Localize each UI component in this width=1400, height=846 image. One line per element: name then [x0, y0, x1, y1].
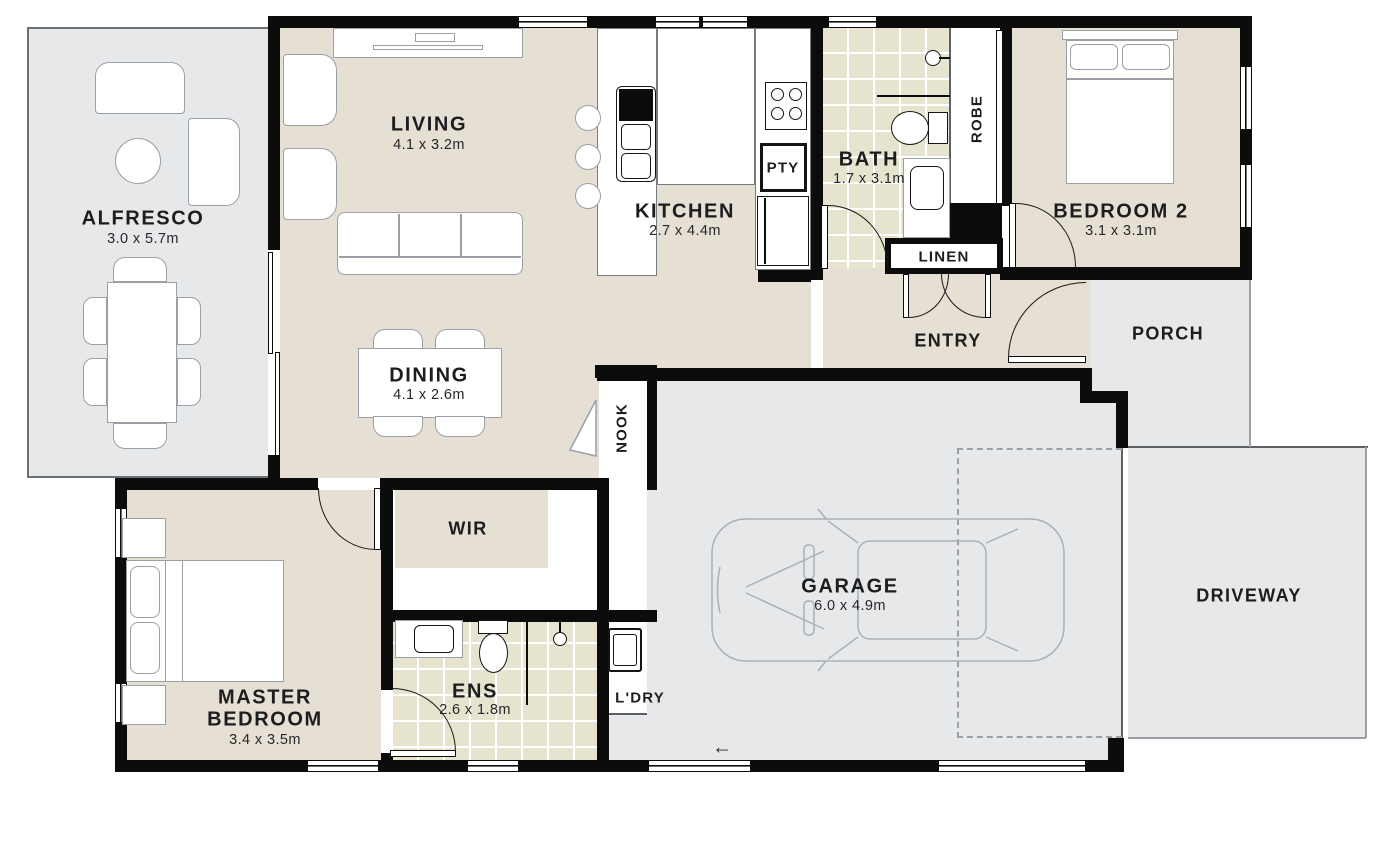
wall [747, 16, 830, 28]
door-leaf-linen [903, 274, 909, 318]
wall [876, 16, 1252, 28]
door-leaf-entry [1008, 356, 1086, 363]
door-leaf-linen [985, 274, 991, 318]
window-bedroom2 [1240, 164, 1252, 228]
dims-master: 3.4 x 3.5m [229, 732, 301, 748]
wall [1240, 16, 1252, 68]
sofa-cushion-line [398, 214, 400, 256]
pillow [130, 622, 160, 674]
label-ens: ENS [452, 681, 498, 704]
outdoor-dining-chair [83, 297, 107, 345]
window-master-bottom [307, 760, 379, 772]
nook-board [566, 398, 600, 460]
porch-edge-line [1249, 280, 1251, 447]
outdoor-dining-chair [177, 358, 201, 406]
door-leaf-master [374, 488, 381, 550]
laundry-tub-basin [613, 634, 637, 666]
vanity-sink [414, 625, 454, 653]
sink-basin [621, 153, 651, 179]
driveway-right-line [1365, 447, 1367, 738]
dims-kitchen: 2.7 x 4.4m [649, 223, 721, 239]
toilet-bowl [891, 111, 929, 145]
dining-chair [373, 329, 423, 350]
wall [268, 16, 520, 28]
wall [750, 760, 940, 772]
label-linen: LINEN [919, 249, 970, 266]
sliding-door-panel [275, 352, 280, 456]
window-living-top [518, 16, 588, 28]
wall [758, 270, 811, 282]
shower-screen [877, 95, 950, 97]
nightstand [122, 518, 166, 558]
dining-chair [435, 416, 485, 437]
garage-slab-patch [609, 715, 647, 760]
stool [575, 183, 601, 209]
wall [268, 455, 280, 480]
wall [115, 478, 318, 490]
pillow [1122, 44, 1170, 70]
wall [115, 478, 127, 510]
wall [1240, 130, 1252, 164]
driveway-bottom-line [1128, 737, 1366, 739]
bed-sheet-fold [165, 560, 183, 682]
window-ens-bottom [467, 760, 519, 772]
wall [647, 378, 657, 490]
kitchen-bench [657, 28, 755, 185]
dims-garage: 6.0 x 4.9m [814, 598, 886, 614]
entry-arrow: ← [712, 737, 732, 760]
sliding-door-robe [996, 30, 1003, 204]
label-alfresco: ALFRESCO [82, 208, 205, 231]
burner [771, 107, 784, 120]
label-master-line1: MASTER [218, 687, 312, 710]
toilet-tank [478, 620, 508, 634]
tv [415, 33, 455, 42]
outdoor-dining-chair [177, 297, 201, 345]
label-porch: PORCH [1132, 324, 1204, 345]
dining-chair [435, 329, 485, 350]
outdoor-dining-chair [83, 358, 107, 406]
label-nook: NOOK [614, 403, 631, 453]
sofa [337, 212, 523, 275]
outdoor-round-table [115, 138, 161, 184]
wall [950, 203, 1002, 238]
shower-arm [939, 57, 950, 59]
door-leaf-ens [390, 750, 456, 757]
wall [595, 365, 657, 378]
vanity-sink [910, 166, 944, 210]
dims-living: 4.1 x 3.2m [393, 137, 465, 153]
label-entry: ENTRY [914, 331, 981, 352]
label-kitchen: KITCHEN [635, 201, 735, 224]
wall [1108, 738, 1124, 764]
fridge-door-line [764, 198, 766, 264]
label-master-line2: BEDROOM [207, 709, 323, 732]
label-pantry: PTY [767, 160, 800, 177]
hall-floor [600, 278, 811, 370]
burner [789, 88, 802, 101]
wall [268, 28, 280, 252]
tv-soundbar [373, 45, 483, 50]
driveway-top-line [1128, 446, 1368, 448]
wall [597, 368, 1092, 381]
floor-plan: ← ALFRESCO 3.0 x 5.7m LIVING 4.1 x 3.2m … [0, 0, 1400, 846]
toilet-tank [928, 112, 948, 144]
label-living: LIVING [391, 114, 467, 137]
window-bath-top [828, 16, 878, 28]
sofa-back-line [339, 256, 521, 258]
window-mullion [699, 16, 703, 28]
burner [789, 107, 802, 120]
hall-to-wir [609, 490, 647, 612]
pillow [130, 566, 160, 618]
label-wir: WIR [448, 519, 487, 540]
wall [115, 760, 309, 772]
armchair [283, 54, 337, 126]
wall [381, 618, 393, 690]
outdoor-sofa [95, 62, 185, 114]
dims-dining: 4.1 x 2.6m [393, 387, 465, 403]
dims-alfresco: 3.0 x 5.7m [107, 231, 179, 247]
window-garage-bottom [648, 760, 752, 772]
dining-chair [373, 416, 423, 437]
label-dining: DINING [389, 365, 469, 388]
bed-sheet-line [1067, 78, 1173, 80]
armchair [283, 148, 337, 220]
dims-bath: 1.7 x 3.1m [833, 171, 905, 187]
wall [588, 16, 657, 28]
sofa-cushion-line [460, 214, 462, 256]
wall [381, 490, 393, 612]
wall [597, 478, 609, 620]
label-garage: GARAGE [801, 576, 898, 599]
wir-closet-side [548, 490, 597, 568]
garage-door [938, 760, 1087, 772]
outdoor-dining-chair [113, 257, 167, 282]
stool [575, 105, 601, 131]
bed-headboard [1062, 30, 1178, 40]
shower-head-icon [553, 632, 567, 646]
sink-drainer [619, 89, 653, 121]
outdoor-chair [188, 118, 240, 206]
sink-basin [621, 124, 651, 150]
wir-closet-strip [395, 568, 597, 610]
wall [519, 760, 650, 772]
outdoor-dining-table [107, 282, 177, 423]
wall [1090, 391, 1128, 403]
door-leaf-bath [821, 205, 828, 269]
burner [771, 88, 784, 101]
label-bath: BATH [839, 149, 899, 172]
window-bedroom2 [1240, 66, 1252, 130]
sliding-door-panel [268, 252, 273, 354]
label-laundry: L'DRY [615, 690, 665, 707]
pillow [1070, 44, 1118, 70]
stool [575, 144, 601, 170]
outdoor-dining-chair [113, 423, 167, 449]
toilet-bowl [479, 633, 508, 673]
nightstand [122, 685, 166, 725]
wall [1116, 403, 1128, 448]
shower-arm [559, 620, 561, 632]
dims-ens: 2.6 x 1.8m [439, 702, 511, 718]
wall [380, 478, 609, 490]
label-bedroom2: BEDROOM 2 [1053, 201, 1189, 224]
dims-bedroom2: 3.1 x 3.1m [1085, 223, 1157, 239]
label-driveway: DRIVEWAY [1196, 586, 1302, 607]
label-robe: ROBE [969, 95, 986, 143]
wall [1000, 267, 1252, 280]
door-leaf-bedroom2 [1009, 203, 1016, 268]
shower-screen [526, 620, 528, 705]
cooktop [765, 82, 807, 130]
